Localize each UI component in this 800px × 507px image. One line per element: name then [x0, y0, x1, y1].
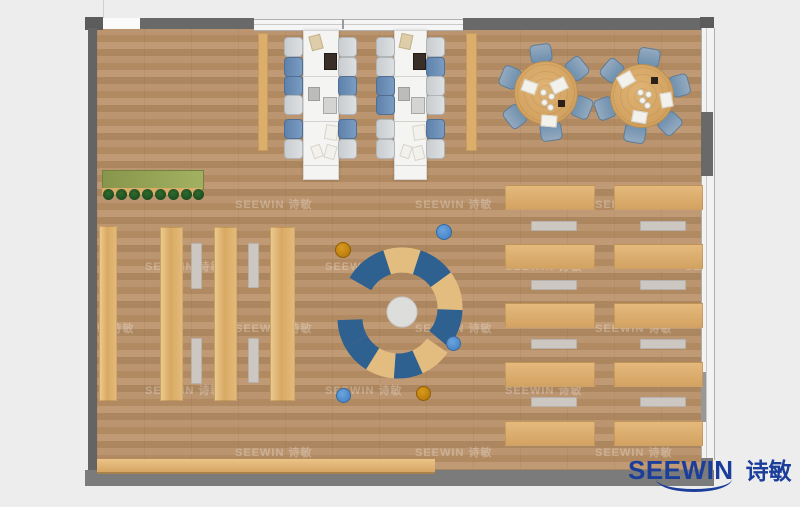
laptop: [411, 97, 425, 114]
plant-bush: [193, 189, 204, 200]
office-chair-gray: [426, 95, 445, 115]
right-wall-segment: [701, 112, 713, 176]
curved-bench-segment-wood: [418, 346, 438, 362]
desk-row: [614, 303, 703, 328]
desk-row: [614, 362, 703, 387]
left-wall: [88, 28, 97, 472]
bookshelf-column: [214, 227, 237, 401]
cup: [547, 104, 554, 111]
top-wall-segment: [140, 18, 254, 29]
round-meeting-table: [514, 61, 578, 125]
office-chair-gray: [376, 139, 395, 159]
bench-seat: [531, 280, 577, 290]
bench-seat: [640, 397, 686, 407]
cup: [637, 89, 644, 96]
desk-item: [308, 87, 320, 101]
cup: [644, 102, 651, 109]
office-chair-blue: [426, 119, 445, 139]
desk-row: [505, 421, 595, 446]
desk-row: [505, 303, 595, 328]
bookshelf-column: [270, 227, 295, 401]
stool-amber: [416, 386, 431, 401]
office-chair-blue: [338, 119, 357, 139]
cup: [540, 89, 547, 96]
stool-amber: [335, 242, 351, 258]
desk-row: [614, 185, 703, 210]
table-paper: [631, 110, 648, 124]
table-item: [558, 100, 565, 107]
side-table-strip: [258, 33, 268, 151]
center-round-rug: [387, 297, 417, 327]
office-chair-gray: [426, 76, 445, 96]
laptop: [413, 53, 426, 70]
reading-bench: [191, 243, 202, 289]
laptop: [323, 97, 337, 114]
desk-row: [614, 244, 703, 269]
desk-paper: [308, 34, 323, 52]
table-paper: [616, 70, 636, 89]
table-paper: [659, 92, 673, 109]
office-chair-gray: [338, 37, 357, 57]
table-paper: [549, 76, 569, 95]
watermark-text: SEEWIN 诗敏: [415, 196, 492, 212]
plant-bush: [181, 189, 192, 200]
watermark-text: SEEWIN 诗敏: [235, 196, 312, 212]
bench-seat: [531, 221, 577, 231]
office-chair-gray: [376, 57, 395, 77]
side-table-strip: [466, 33, 477, 151]
stool-blue: [336, 388, 351, 403]
office-chair-blue: [284, 57, 303, 77]
curved-bench-segment-wood: [387, 260, 417, 262]
table-paper: [520, 79, 538, 95]
bookshelf-column: [99, 226, 117, 401]
watermark-text: SEEWIN 诗敏: [145, 382, 222, 398]
round-meeting-table: [610, 64, 674, 128]
desk-row: [505, 185, 595, 210]
office-chair-blue: [284, 76, 303, 96]
plant-bush: [155, 189, 166, 200]
desk-row: [505, 244, 595, 269]
curved-bench-segment-blue: [417, 262, 441, 280]
reading-bench: [248, 243, 259, 288]
desk-paper: [412, 124, 427, 141]
office-chair-gray: [376, 119, 395, 139]
office-chair-gray: [284, 95, 303, 115]
plant-bush: [129, 189, 140, 200]
wall-reference-line: [103, 0, 104, 18]
logo-swoosh: [656, 476, 732, 492]
bench-seat: [531, 397, 577, 407]
reading-bench: [248, 338, 259, 383]
watermark-text: SEEWIN 诗敏: [415, 444, 492, 460]
office-chair-gray: [338, 57, 357, 77]
desk-row: [614, 421, 703, 446]
desk-row: [505, 362, 595, 387]
stool-blue: [436, 224, 452, 240]
bookshelf-column: [160, 227, 183, 401]
plant-bush: [116, 189, 127, 200]
desk-item: [398, 87, 410, 101]
desk-paper: [323, 144, 337, 160]
curved-bench-segment-blue: [395, 362, 418, 366]
desk-paper: [411, 145, 425, 161]
curved-bench-segment-wood: [373, 359, 395, 366]
reading-bench: [191, 338, 202, 384]
logo-text-cn: 诗敏: [746, 458, 792, 484]
desk-paper: [310, 144, 324, 160]
office-chair-blue: [284, 119, 303, 139]
bench-seat: [531, 339, 577, 349]
cup: [548, 93, 555, 100]
door-opening: [103, 18, 140, 29]
office-chair-blue: [338, 76, 357, 96]
plant-bush: [142, 189, 153, 200]
bench-seat: [640, 280, 686, 290]
floor-plan-canvas: { "logo": { "brand": "SEEWIN", "brand_cn…: [0, 0, 800, 507]
desk-paper: [399, 144, 413, 159]
office-chair-gray: [426, 37, 445, 57]
laptop: [324, 53, 337, 70]
office-chair-gray: [284, 139, 303, 159]
planter-box: [102, 170, 204, 190]
office-chair-blue: [426, 57, 445, 77]
workstation-desk: [303, 30, 339, 180]
office-chair-gray: [426, 139, 445, 159]
office-chair-gray: [338, 139, 357, 159]
service-counter: [97, 459, 435, 474]
office-chair-gray: [284, 37, 303, 57]
plant-bush: [168, 189, 179, 200]
bench-seat: [640, 221, 686, 231]
workstation-desk: [394, 30, 427, 180]
office-chair-gray: [376, 37, 395, 57]
table-item: [651, 77, 658, 84]
window-mullion: [342, 19, 344, 29]
curved-bench-segment-blue: [439, 310, 450, 339]
cup: [645, 91, 652, 98]
office-chair-blue: [376, 95, 395, 115]
office-chair-blue: [376, 76, 395, 96]
desk-paper: [324, 124, 339, 141]
desk-paper: [399, 33, 414, 50]
watermark-text: SEEWIN 诗敏: [235, 444, 312, 460]
curved-bench-segment-blue: [356, 342, 372, 359]
curved-bench-segment-blue: [360, 262, 387, 284]
office-chair-gray: [338, 95, 357, 115]
watermark-text: SEEWIN 诗敏: [145, 258, 222, 274]
table-paper: [541, 114, 558, 127]
curved-bench-segment-blue: [350, 320, 356, 342]
stool-blue: [446, 336, 461, 351]
top-window-band: [254, 19, 463, 31]
top-wall-segment: [463, 18, 701, 30]
plant-bush: [103, 189, 114, 200]
seewin-logo: SEEWIN诗敏: [628, 452, 798, 492]
bench-seat: [640, 339, 686, 349]
curved-bench-segment-wood: [441, 280, 450, 310]
